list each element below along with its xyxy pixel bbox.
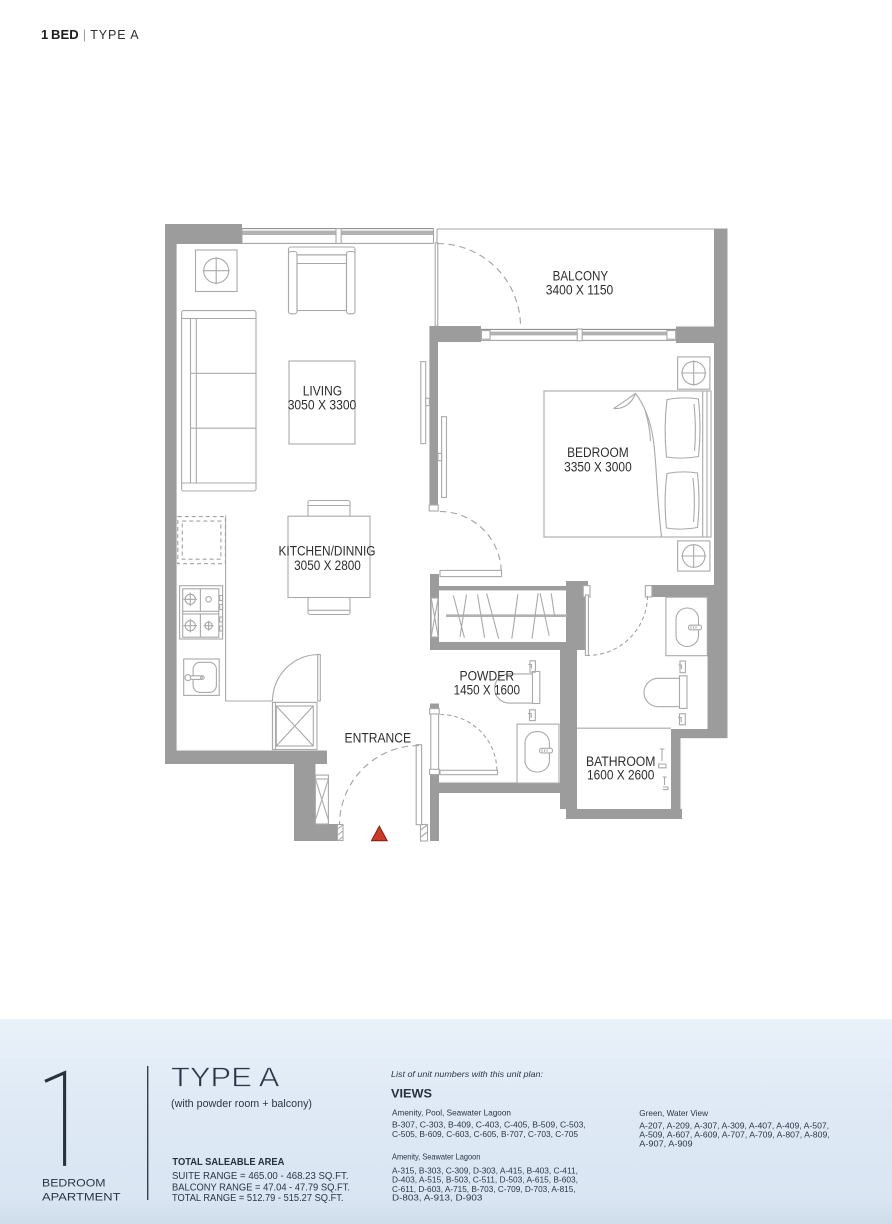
svg-text:3350 X 3000: 3350 X 3000 <box>564 459 632 474</box>
svg-text:POWDER: POWDER <box>460 668 515 683</box>
svg-text:BALCONY RANGE = 47.04 - 47.79: BALCONY RANGE = 47.04 - 47.79 SQ.FT. <box>172 1182 350 1193</box>
svg-text:Green, Water View: Green, Water View <box>639 1108 709 1118</box>
svg-text:D-803, A-913, D-903: D-803, A-913, D-903 <box>392 1193 483 1203</box>
svg-text:TOTAL RANGE = 512.79 - 515.27: TOTAL RANGE = 512.79 - 515.27 SQ.FT. <box>172 1193 344 1204</box>
svg-text:1450 X 1600: 1450 X 1600 <box>454 683 520 698</box>
svg-text:ENTRANCE: ENTRANCE <box>345 730 412 745</box>
svg-text:Amenity, Pool, Seawater Lagoon: Amenity, Pool, Seawater Lagoon <box>392 1107 511 1117</box>
svg-text:SUITE RANGE = 465.00 - 468.23: SUITE RANGE = 465.00 - 468.23 SQ.FT. <box>172 1171 349 1182</box>
svg-text:3050 X 3300: 3050 X 3300 <box>288 398 357 413</box>
svg-text:1600 X 2600: 1600 X 2600 <box>587 768 654 783</box>
svg-text:Amenity, Seawater Lagoon: Amenity, Seawater Lagoon <box>392 1152 481 1162</box>
svg-text:(with powder room + balcony): (with powder room + balcony) <box>171 1098 312 1110</box>
svg-text:TOTAL SALEABLE AREA: TOTAL SALEABLE AREA <box>172 1157 284 1168</box>
svg-text:List of unit numbers with this: List of unit numbers with this unit plan… <box>391 1069 543 1079</box>
svg-text:3400 X 1150: 3400 X 1150 <box>546 283 614 298</box>
svg-text:TYPE A: TYPE A <box>171 1061 280 1092</box>
svg-text:LIVING: LIVING <box>303 383 342 398</box>
svg-text:APARTMENT: APARTMENT <box>42 1192 121 1204</box>
svg-text:A-907, A-909: A-907, A-909 <box>639 1139 693 1149</box>
svg-text:VIEWS: VIEWS <box>391 1086 432 1100</box>
svg-text:3050 X 2800: 3050 X 2800 <box>294 558 361 573</box>
svg-text:KITCHEN/DINNIG: KITCHEN/DINNIG <box>279 544 376 559</box>
svg-text:BEDROOM: BEDROOM <box>42 1178 106 1190</box>
svg-text:C-505, B-609, C-603, C-605, B-: C-505, B-609, C-603, C-605, B-707, C-703… <box>392 1129 578 1139</box>
svg-text:BALCONY: BALCONY <box>553 268 609 283</box>
svg-text:BEDROOM: BEDROOM <box>567 445 629 460</box>
